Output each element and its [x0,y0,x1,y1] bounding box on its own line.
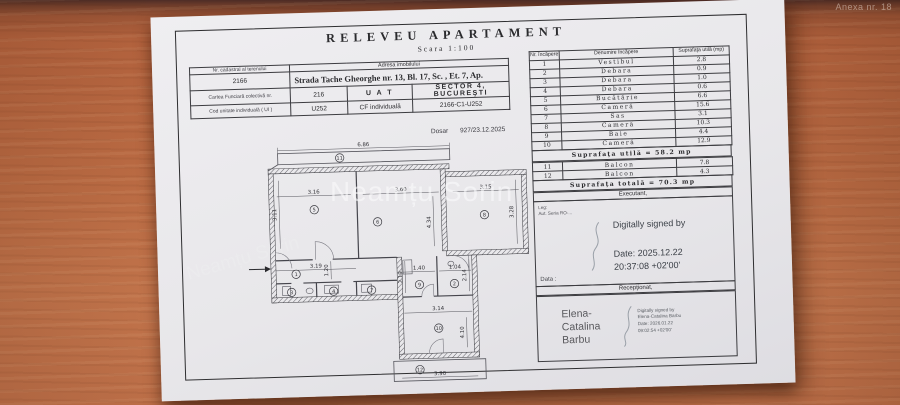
cod-unitate-label: Cod unitate individuală ( UI ) [191,103,291,119]
plan-dimension-label: 2.19 [398,271,404,284]
rooms-column: Nr. încăpere Denumire încăpere Suprafaţa… [529,45,738,361]
room-number-label: 11 [336,156,343,162]
receptionat-box: Elena- Catalina Barbu Digitally signed b… [536,290,738,362]
plan-dimension-label: 3.16 [308,190,321,196]
plan-dimension-label: 4.10 [460,326,466,339]
room-number-label: 2 [453,281,456,287]
aut-label: Aut. Seria RO-... [538,210,572,216]
cf-individuala-value: 2166-C1-U252 [412,96,509,112]
plan-dimension-label: 3.19 [310,263,323,269]
rooms-table: Nr. încăpere Denumire încăpere Suprafaţa… [529,45,733,151]
rooms-table-body: 1Vestibul2.82Debara0.93Debara1.04Debara0… [529,55,732,151]
executant-signed-by: Digitally signed by [613,218,686,231]
dosar-value: 927/23.12.2025 [460,126,505,134]
plan-dimension-label: 1.04 [449,264,462,270]
room-number-label: 4 [332,289,335,295]
data-label: Data : [540,277,556,283]
executant-date-line2: 20:37:08 +02'00' [614,259,681,271]
room-number-label: 8 [483,212,486,218]
plan-dimension-label: 3.11 [272,209,278,221]
executant-credentials: Leg: Aut. Seria RO-... [538,204,572,218]
room-number-label: 6 [376,220,379,226]
plan-dimension-label: 3.90 [434,371,447,377]
receptionat-name-line2: Catalina [562,320,601,334]
address-table: Nr. cadastral al terenului Adresa imobil… [189,58,510,119]
executant-sign-date: Date: 2025.12.22 20:37:08 +02'00' [613,246,683,273]
plan-fixtures [282,259,455,296]
room-number-label: 12 [417,367,424,373]
room-number-label: 9 [418,282,421,288]
cod-unitate-value: U252 [291,101,348,116]
plan-dimension-label: 2.14 [462,269,468,282]
room-number-label: 10 [436,326,443,332]
plan-dimension-label: 3.14 [432,306,445,312]
photo-background: Anexa nr. 18 RELEVEU APARTAMENT Scara 1:… [0,0,900,405]
executant-date-line1: Date: 2025.12.22 [614,247,683,259]
leg-label: Leg: [538,205,547,210]
photographer-watermark: Neamțu Sorin [330,176,513,208]
room-number-label: 7 [370,288,373,294]
receptionat-digital-signature: Digitally signed by Elena-Catalina Barbu… [637,306,681,335]
receptionat-name: Elena- Catalina Barbu [561,307,601,348]
plan-dimension-label: 1.20 [324,264,330,277]
executant-box: Leg: Aut. Seria RO-... Digitally signed … [533,195,735,287]
carte-funciara-value: 216 [290,86,347,103]
cf-individuala-label: CF individuală [348,99,413,114]
dosar-label: Dosar [431,128,449,136]
receptionat-name-line3: Barbu [562,333,601,347]
plan-dimension-label: 4.34 [426,216,432,229]
room-number-label: 3 [290,290,293,296]
plan-dimension-label: 6.86 [357,142,370,148]
receptionat-sig-line4: 09:02:54 +02'00' [638,327,682,335]
plan-dimension-label: 1.40 [413,265,426,271]
room-number-label: 5 [313,207,316,213]
receptionat-name-line1: Elena- [561,307,600,321]
annex-annotation: Anexa nr. 18 [835,2,892,12]
room-number-label: 1 [294,272,297,278]
